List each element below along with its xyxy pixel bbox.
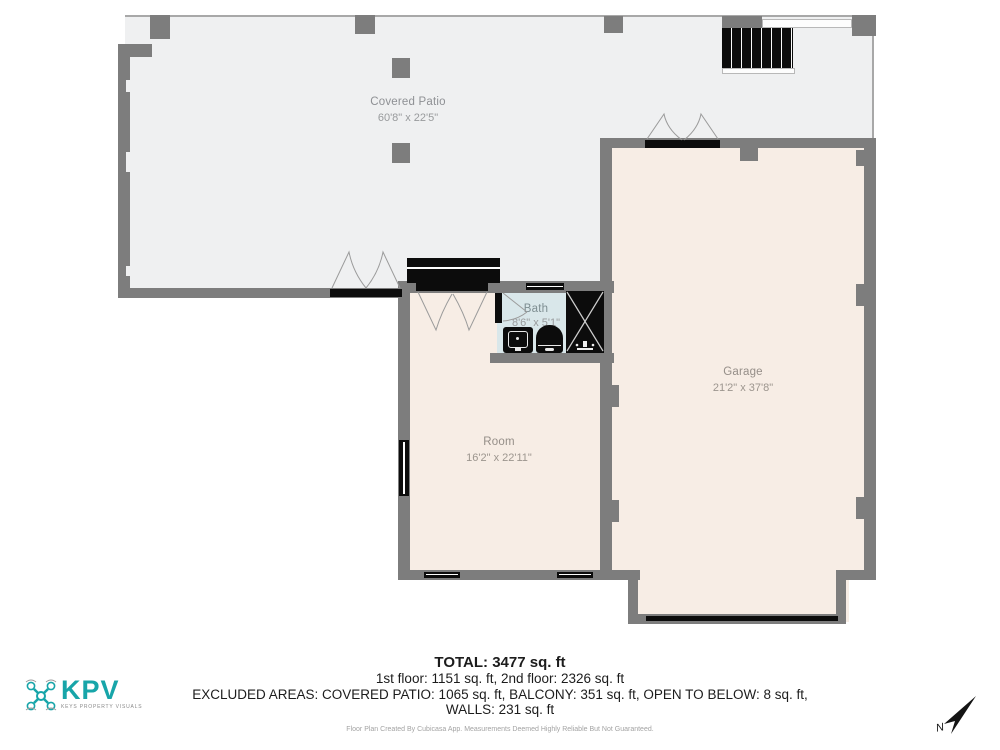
kpv-logo: KPV KEYS PROPERTY VISUALS [24, 677, 142, 711]
patio-post [392, 58, 410, 78]
room-window-line [559, 574, 591, 575]
garage-label: Garage 21'2" x 37'8" [663, 366, 823, 394]
stairs-landing [722, 68, 795, 74]
covered-patio-label: Covered Patio 60'8" x 22'5" [308, 96, 508, 124]
shower [566, 291, 604, 353]
garage-right-wall [864, 138, 876, 580]
garage-right-pillar [856, 497, 864, 519]
covered-patio-area [125, 15, 612, 295]
stairs [722, 28, 793, 68]
sink [503, 327, 533, 353]
garage-area [612, 145, 874, 578]
room-left-wall [398, 281, 410, 580]
patio-post [392, 143, 410, 163]
north-label: N [935, 721, 945, 734]
garage-patio-door-threshold [645, 140, 720, 148]
wall-notch [126, 266, 130, 276]
floor-plan-page: Covered Patio 60'8" x 22'5" Garage 21'2"… [0, 0, 1000, 750]
room-dimensions: 21'2" x 37'8" [663, 382, 823, 394]
toilet-tank-line [538, 345, 561, 346]
room-left-window-line [403, 442, 405, 494]
garage-top-pillar [740, 148, 758, 161]
balcony-tread-line [407, 267, 500, 269]
patio-topleft-pillar [150, 15, 170, 39]
drone-icon [24, 677, 58, 711]
disclaimer-text: Floor Plan Created By Cubicasa App. Meas… [0, 726, 1000, 733]
stairs-top-wall [722, 16, 762, 28]
floor-areas-text: 1st floor: 1151 sq. ft, 2nd floor: 2326 … [0, 671, 1000, 687]
garage-right-pillar [856, 284, 864, 306]
room-window [557, 572, 593, 578]
room-window [424, 572, 460, 578]
patio-top-pillar [604, 16, 623, 33]
garage-left-pillar [612, 500, 619, 522]
garage-left-pillar [612, 385, 619, 407]
wall-notch [126, 152, 130, 172]
bath-window-line [527, 286, 563, 287]
bath-bottom-wall [490, 353, 614, 363]
room-label: Room 16'2" x 22'11" [419, 436, 579, 464]
logo-tagline: KEYS PROPERTY VISUALS [61, 704, 142, 710]
room-dimensions: 16'2" x 22'11" [419, 452, 579, 464]
area-summary: TOTAL: 3477 sq. ft 1st floor: 1151 sq. f… [0, 655, 1000, 718]
garage-door-threshold [646, 616, 838, 621]
total-area-text: TOTAL: 3477 sq. ft [0, 655, 1000, 671]
sink-drain [516, 337, 519, 340]
patio-top-pillar [355, 15, 375, 34]
sink-faucet [515, 347, 521, 351]
room-dimensions: 60'8" x 22'5" [308, 112, 508, 124]
walls-area-text: WALLS: 231 sq. ft [0, 702, 1000, 718]
garage-right-pillar [856, 150, 864, 166]
wall-notch [126, 80, 130, 92]
patio-topright-pillar [852, 15, 876, 36]
toilet [536, 325, 563, 353]
patio-railing [762, 19, 852, 28]
room-name: Room [419, 436, 579, 448]
toilet-flush [545, 348, 554, 351]
garage-top-wall [602, 138, 876, 148]
room-name: Covered Patio [308, 96, 508, 108]
excluded-areas-text: EXCLUDED AREAS: COVERED PATIO: 1065 sq. … [0, 687, 1000, 703]
room-name: Garage [663, 366, 823, 378]
balcony-block [407, 258, 500, 283]
logo-text: KPV [61, 677, 142, 703]
room-window-line [426, 574, 458, 575]
room-door-threshold [416, 283, 488, 291]
patio-door-threshold [330, 289, 402, 297]
